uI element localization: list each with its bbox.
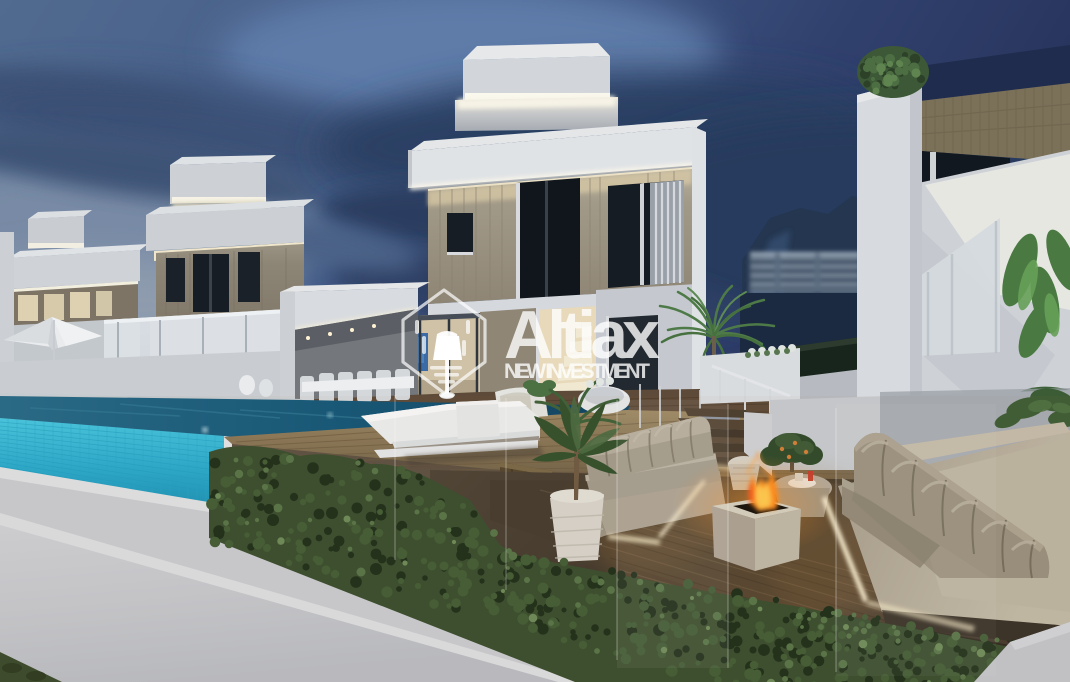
svg-text:NEW INVESTMENT: NEW INVESTMENT xyxy=(504,360,650,383)
